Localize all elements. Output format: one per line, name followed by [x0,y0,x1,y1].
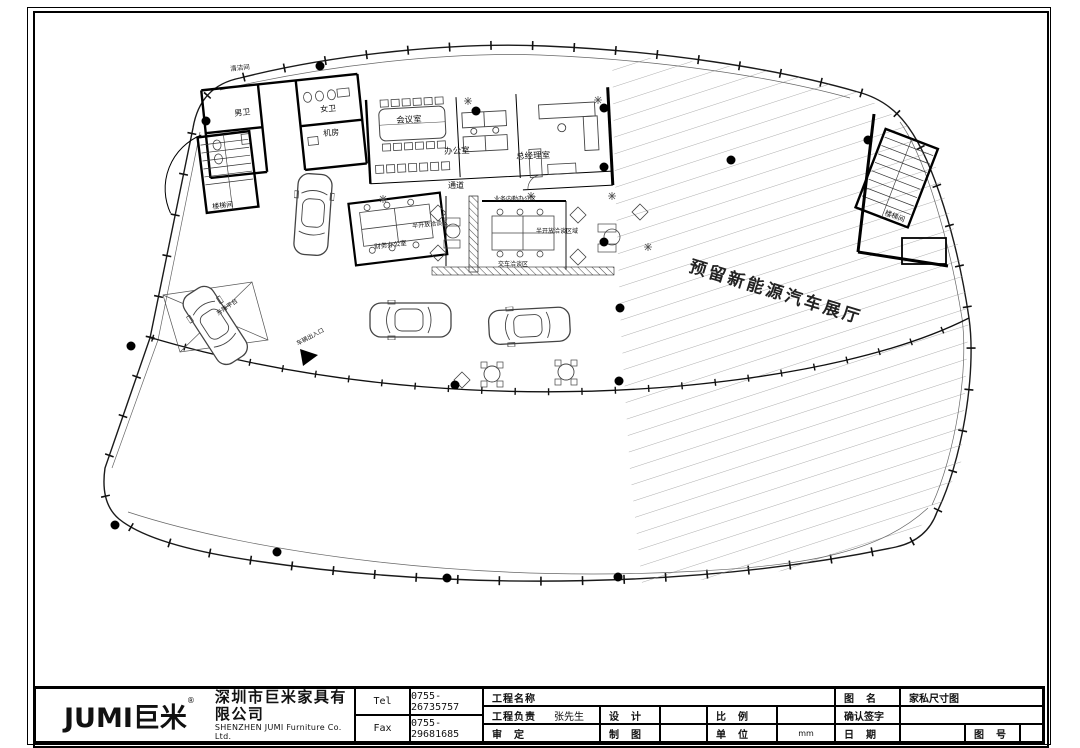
date-cell: 日 期 [835,724,900,742]
drawing-no-label: 图 号 [966,726,1007,741]
drawing-name-label-cell: 图 名 [835,688,900,706]
drawing-no-value-cell [1020,724,1043,742]
scale-cell: 比 例 [707,706,777,724]
confirm-sign-value-cell [900,706,1043,724]
sheet-inner-frame [33,11,1049,748]
unit-cell: 单 位 [707,724,777,742]
registered-trademark-icon: ® [187,696,195,705]
draft-value-cell [660,724,707,742]
project-name-label: 工程名称 [484,690,536,705]
fax-label-cell: Fax [355,715,410,742]
unit-value-cell: mm [777,724,835,742]
tel-label: Tel [373,696,391,707]
company-names: 深圳市巨米家具有限公司 SHENZHEN JUMI Furniture Co. … [215,689,354,742]
tel-value: 0755-26735757 [411,691,482,713]
design-cell: 设 计 [600,706,660,724]
company-logo: JUMI巨米® [64,696,195,735]
drawing-sheet: 清洁间 男卫 女卫 机房 会议室 办公室 总经理室 通道 财务办公室 半开放洽谈… [0,0,1080,748]
confirm-sign-label: 确认签字 [836,708,884,723]
project-lead-cell: 工程负责 张先生 [483,706,600,724]
drawing-name-label: 图 名 [836,690,877,705]
drawing-name-value: 家私尺寸图 [901,690,959,705]
design-label: 设 计 [601,708,642,723]
draft-label: 制 图 [601,726,642,741]
project-lead-label: 工程负责 [484,708,536,723]
company-cell: JUMI巨米® 深圳市巨米家具有限公司 SHENZHEN JUMI Furnit… [35,688,355,742]
project-lead-value: 张先生 [546,708,584,723]
company-name-en: SHENZHEN JUMI Furniture Co. Ltd. [215,723,354,741]
date-label: 日 期 [836,726,877,741]
fax-label: Fax [373,723,391,734]
unit-label: 单 位 [708,726,749,741]
fax-value-cell: 0755-29681685 [410,715,483,742]
logo-text: JUMI巨米 [64,703,187,734]
scale-value-cell [777,706,835,724]
tel-label-cell: Tel [355,688,410,715]
confirm-sign-cell: 确认签字 [835,706,900,724]
drawing-name-value-cell: 家私尺寸图 [900,688,1043,706]
review-label: 审 定 [484,726,525,741]
tel-value-cell: 0755-26735757 [410,688,483,715]
company-name-cn: 深圳市巨米家具有限公司 [215,689,354,724]
review-cell: 审 定 [483,724,600,742]
date-value-cell [900,724,965,742]
drawing-no-cell: 图 号 [965,724,1020,742]
fax-value: 0755-29681685 [411,718,482,740]
project-name-cell: 工程名称 [483,688,835,706]
unit-value: mm [798,729,814,738]
design-value-cell [660,706,707,724]
title-block: JUMI巨米® 深圳市巨米家具有限公司 SHENZHEN JUMI Furnit… [33,686,1045,744]
draft-cell: 制 图 [600,724,660,742]
scale-label: 比 例 [708,708,749,723]
